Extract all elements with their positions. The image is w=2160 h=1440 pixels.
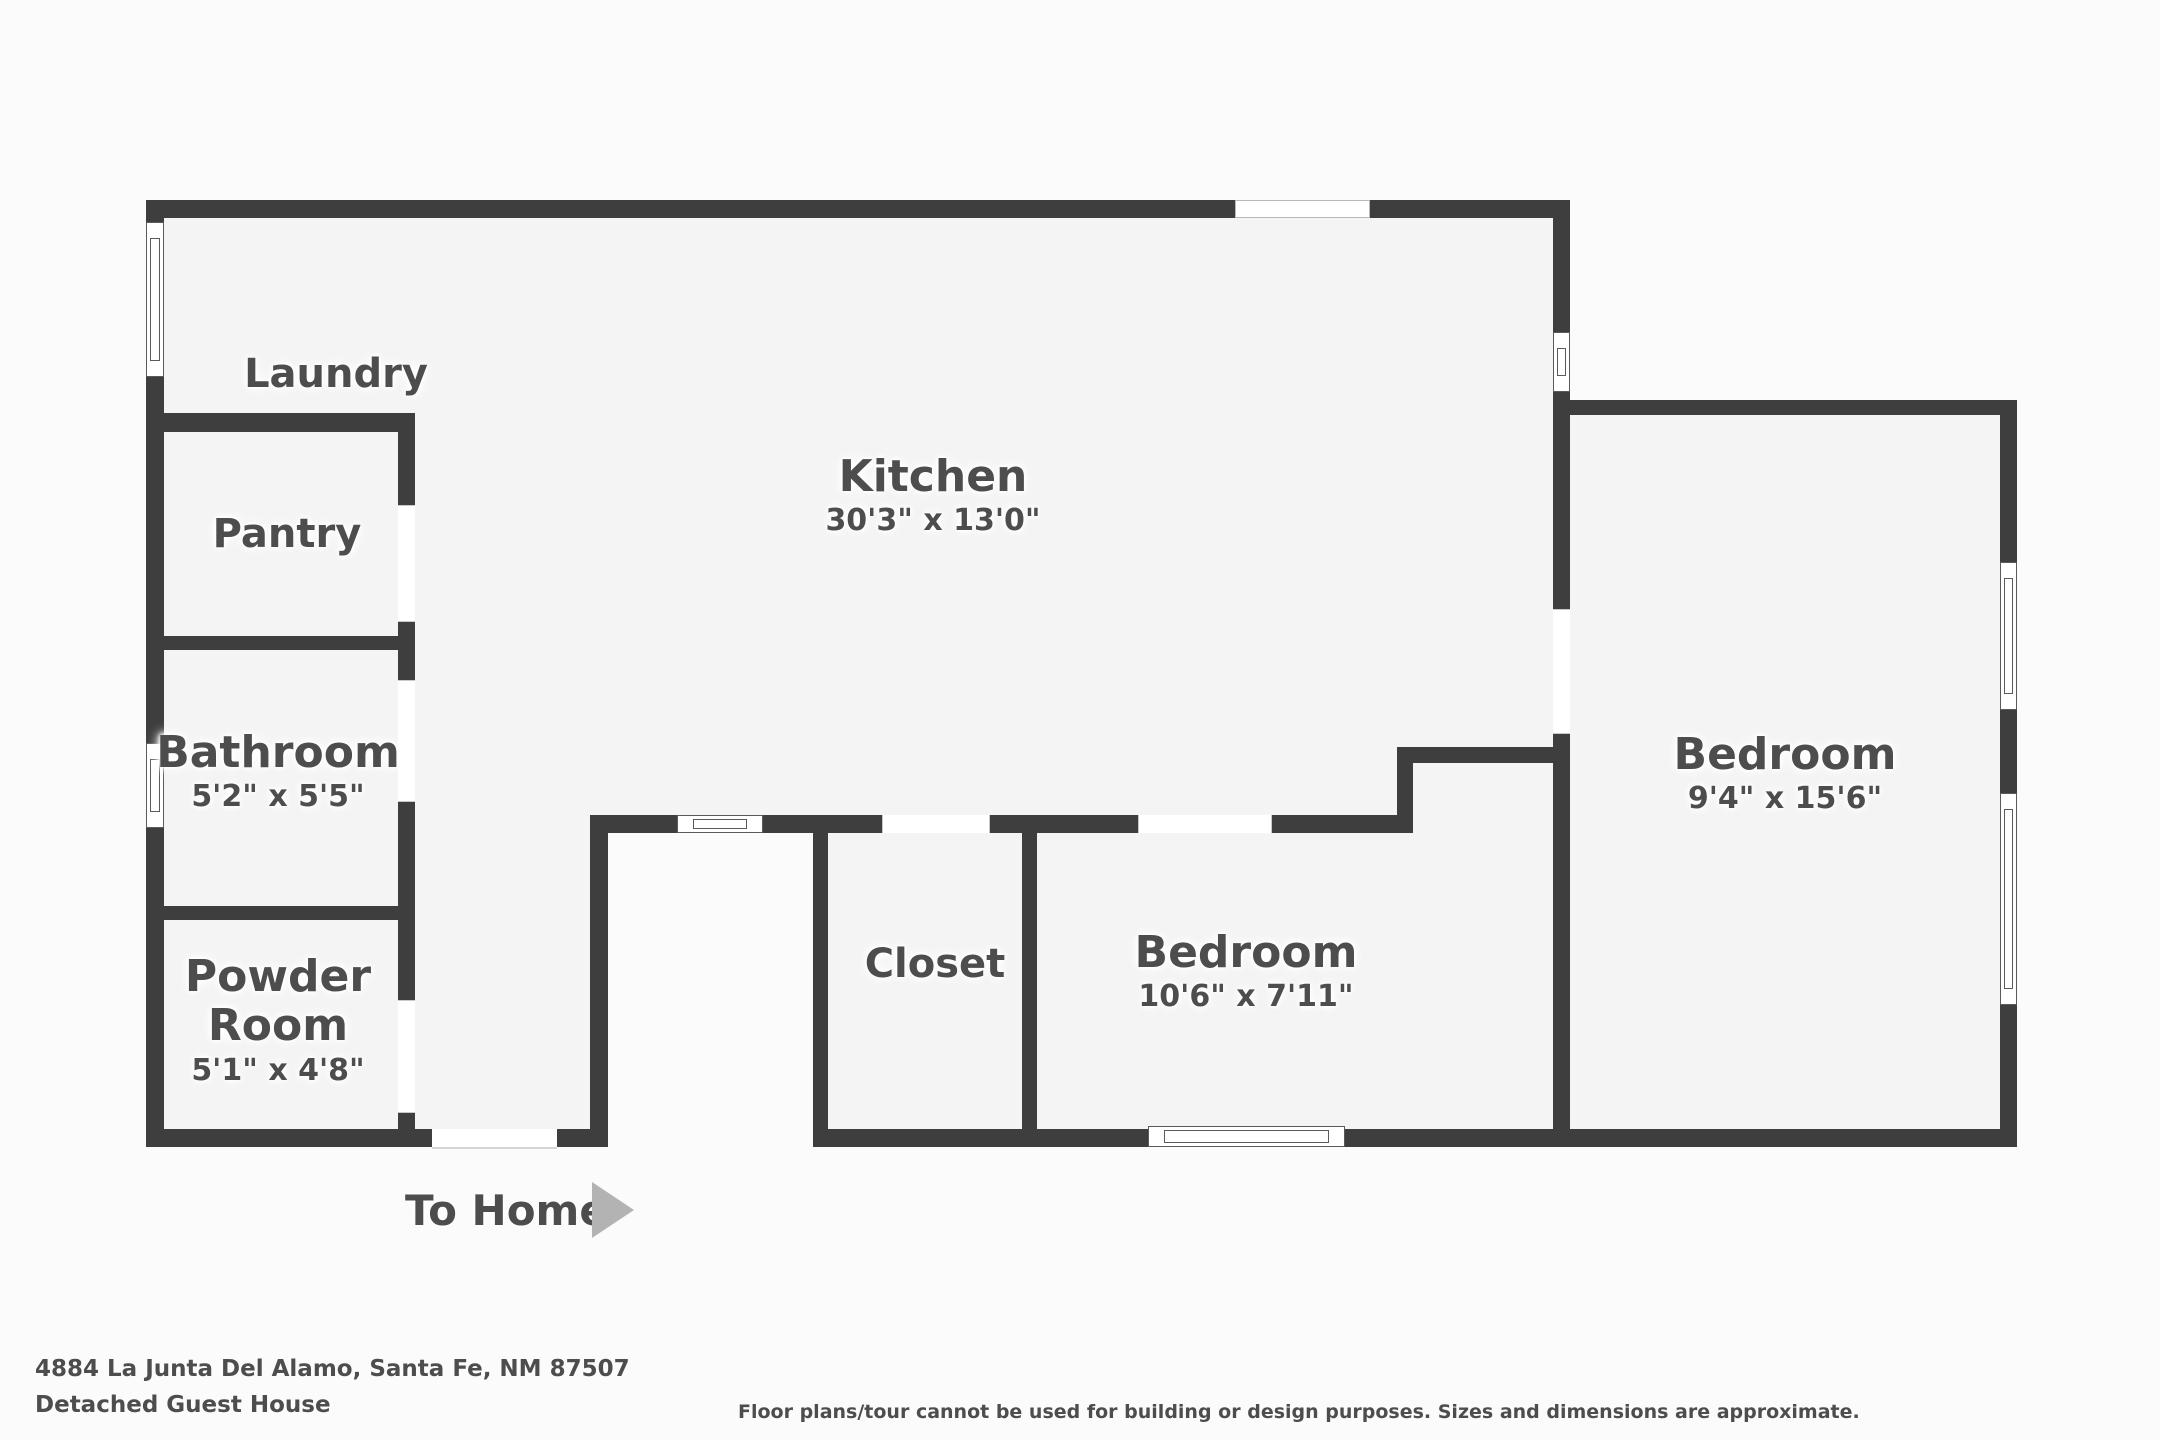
- room-label-laundry: Laundry: [244, 352, 428, 397]
- floor-plan-canvas: Laundry Pantry Kitchen 30'3" x 13'0" Bat…: [0, 0, 2160, 1440]
- wall: [398, 800, 415, 1000]
- door-opening: [882, 815, 990, 833]
- room-name: Closet: [865, 942, 1006, 987]
- door-opening: [398, 1000, 415, 1113]
- footer-address: 4884 La Junta Del Alamo, Santa Fe, NM 87…: [35, 1356, 630, 1382]
- room-label-pantry: Pantry: [213, 512, 362, 557]
- room-label-bathroom: Bathroom 5'2" x 5'5": [156, 728, 400, 818]
- wall: [398, 413, 415, 505]
- window-symbol: [1235, 200, 1370, 218]
- window-glass: [1164, 1130, 1329, 1143]
- wall: [1553, 200, 1570, 332]
- room-dims: 10'6" x 7'11": [1135, 977, 1358, 1018]
- wall: [590, 815, 608, 1147]
- window-symbol: [146, 222, 164, 377]
- wall: [2000, 710, 2017, 793]
- wall: [813, 1129, 1148, 1147]
- room-label-kitchen: Kitchen 30'3" x 13'0": [825, 452, 1040, 542]
- entry-opening: [432, 1129, 557, 1149]
- wall: [1397, 747, 1570, 763]
- wall: [398, 1111, 415, 1129]
- room-name: Kitchen: [825, 452, 1040, 501]
- wall: [2000, 400, 2017, 562]
- footer-disclaimer: Floor plans/tour cannot be used for buil…: [738, 1401, 1860, 1423]
- door-opening: [398, 680, 415, 802]
- window-glass: [150, 238, 160, 361]
- room-dims: 9'4" x 15'6": [1674, 779, 1897, 820]
- window-glass: [1557, 348, 1566, 376]
- window-symbol: [1148, 1126, 1345, 1147]
- wall: [2000, 1005, 2017, 1147]
- room-name: Bedroom: [1135, 928, 1358, 977]
- window-symbol: [677, 815, 763, 833]
- wall: [590, 815, 677, 833]
- room-name: Bedroom: [1674, 730, 1897, 779]
- room-name: Pantry: [213, 512, 362, 557]
- room-name: Bathroom: [156, 728, 400, 777]
- wall: [146, 906, 415, 920]
- to-home-label: To Home: [405, 1186, 608, 1235]
- wall: [1553, 400, 2017, 415]
- footer-subtitle: Detached Guest House: [35, 1392, 331, 1418]
- wall: [146, 413, 415, 432]
- wall: [1553, 732, 1570, 1147]
- window-symbol: [2000, 793, 2017, 1005]
- window-glass: [693, 819, 747, 829]
- door-opening: [1553, 609, 1570, 734]
- room-dims: 5'2" x 5'5": [156, 777, 400, 818]
- wall: [1345, 1129, 2017, 1147]
- wall: [988, 815, 1138, 833]
- to-home-arrow-icon[interactable]: [592, 1182, 634, 1238]
- door-opening: [398, 505, 415, 622]
- wall: [813, 833, 828, 1129]
- wall: [1022, 833, 1037, 1129]
- wall: [763, 815, 882, 833]
- wall: [146, 1129, 432, 1147]
- wall: [1270, 815, 1397, 833]
- room-name: Laundry: [244, 352, 428, 397]
- room-label-powder-room: Powder Room 5'1" x 4'8": [158, 952, 398, 1091]
- room-dims: 30'3" x 13'0": [825, 501, 1040, 542]
- window-glass: [2004, 809, 2013, 989]
- room-name: Powder Room: [158, 952, 398, 1051]
- window-symbol: [1553, 332, 1570, 392]
- window-glass: [2004, 578, 2013, 694]
- room-label-closet: Closet: [865, 942, 1006, 987]
- room-label-bedroom-small: Bedroom 10'6" x 7'11": [1135, 928, 1358, 1018]
- window-symbol: [2000, 562, 2017, 710]
- wall: [1553, 392, 1570, 609]
- room-label-bedroom-right: Bedroom 9'4" x 15'6": [1674, 730, 1897, 820]
- floor-area: [1397, 747, 1570, 1147]
- wall: [398, 620, 415, 680]
- wall: [146, 636, 415, 650]
- door-opening: [1138, 815, 1272, 833]
- room-dims: 5'1" x 4'8": [158, 1051, 398, 1092]
